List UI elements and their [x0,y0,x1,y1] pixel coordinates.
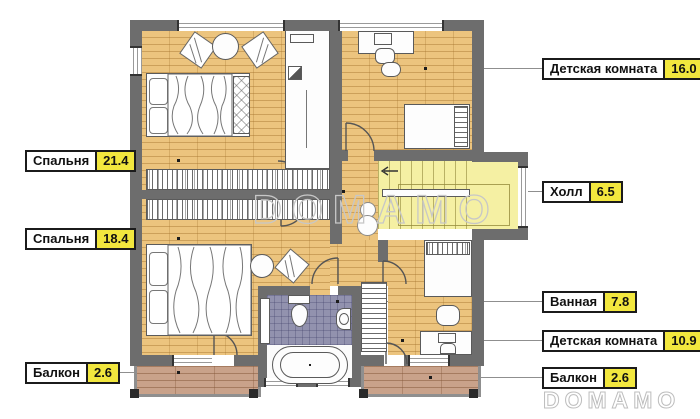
leader-dot [177,159,180,162]
dresser-icon [290,34,314,43]
callout-kids-room-small: Детская комната 10.9 [542,330,700,352]
toilet-tank-icon [288,295,310,304]
bathtub-drain [309,364,311,366]
closet-bedroom-large [285,31,330,169]
room-area-badge: 21.4 [97,150,136,172]
door-kids-large [344,120,376,152]
bed-bench-icon [233,76,250,134]
room-area-badge: 2.6 [605,367,637,389]
wall-bay-bottom [472,229,528,240]
leader-dot [401,339,404,342]
wall-right-lower [472,229,484,366]
callout-kids-room-large: Детская комната 16.0 [542,58,700,80]
wardrobe-door-line [306,90,307,148]
room-label: Детская комната [542,330,665,352]
room-area-badge: 18.4 [97,228,136,250]
wall-partition-bedroom-kids [330,31,342,160]
pillow-icon [149,78,168,105]
wall-wardrobe-middle [142,190,338,199]
wardrobe-bottom-band [146,199,330,220]
room-label: Балкон [542,367,605,389]
callout-bathroom: Ванная 7.8 [542,291,637,313]
computer-icon [374,33,392,45]
room-area-badge: 6.5 [591,181,623,203]
plant-icon [357,215,378,236]
room-area-badge: 10.9 [665,330,700,352]
floor-plan: Детская комната 16.0 Спальня 21.4 Холл 6… [0,0,700,419]
wall-right-upper [472,20,484,160]
room-area-badge: 16.0 [665,58,700,80]
bed-pillow-stripes [454,106,468,147]
window-stair-bay [518,166,528,228]
leader-dot [336,300,339,303]
callout-hall: Холл 6.5 [542,181,623,203]
room-area-badge: 7.8 [605,291,637,313]
door-bathroom [310,256,340,286]
desk-chair-icon [440,343,456,354]
wall-bath-right [352,286,361,387]
callout-bedroom-small: Спальня 18.4 [25,228,136,250]
cabinet-icon [288,66,302,80]
wall-corridor-left [330,160,342,199]
callout-bedroom-large: Спальня 21.4 [25,150,136,172]
room-label: Балкон [25,362,88,384]
computer-icon [438,333,456,343]
room-label: Ванная [542,291,605,313]
doorway-balcony-left [212,355,234,366]
leader-dot [429,376,432,379]
leader-dot [424,67,427,70]
chair-icon [436,305,460,326]
bed-duvet-icon [168,74,232,136]
pillow-icon [149,290,168,324]
staircase-handrail [382,189,470,197]
balcony-post [249,389,258,398]
wall-corridor-left-lower [330,199,342,244]
pillow-icon [149,252,168,286]
round-table-icon [212,33,239,60]
bath-shelf-icon [260,298,270,344]
callout-balcony-left: Балкон 2.6 [25,362,120,384]
armchair-icon [272,246,312,286]
room-label: Холл [542,181,591,203]
round-table-icon [250,254,274,278]
stairs-direction-arrow [379,165,399,177]
room-area-badge: 2.6 [88,362,120,384]
window-left-wall [130,46,142,76]
leader-dot [177,237,180,240]
leader-dot [177,371,180,374]
room-label: Детская комната [542,58,665,80]
window-top-right [338,20,444,31]
closet-kids-small [361,282,387,352]
balcony-post [130,389,139,398]
wardrobe-top-band [146,169,330,190]
balcony-post [359,389,368,398]
room-label: Спальня [25,228,97,250]
bed-duvet-icon [168,245,251,335]
watermark-corner: DOMAMO [543,387,680,414]
pillow-icon [149,107,168,134]
armchair-icon [240,30,280,70]
window-bedroom-small-south [172,355,216,366]
bed-pillow-stripes [426,242,470,255]
sink-basin-icon [339,313,349,325]
leader-dot [342,190,345,193]
door-balcony-right [384,341,408,365]
callout-balcony-right: Балкон 2.6 [542,367,637,389]
wall-kids-large-bottom-b [374,150,472,161]
chair-icon [381,62,401,77]
balcony-post [469,389,478,398]
room-label: Спальня [25,150,97,172]
window-kids-small-south [408,355,450,366]
